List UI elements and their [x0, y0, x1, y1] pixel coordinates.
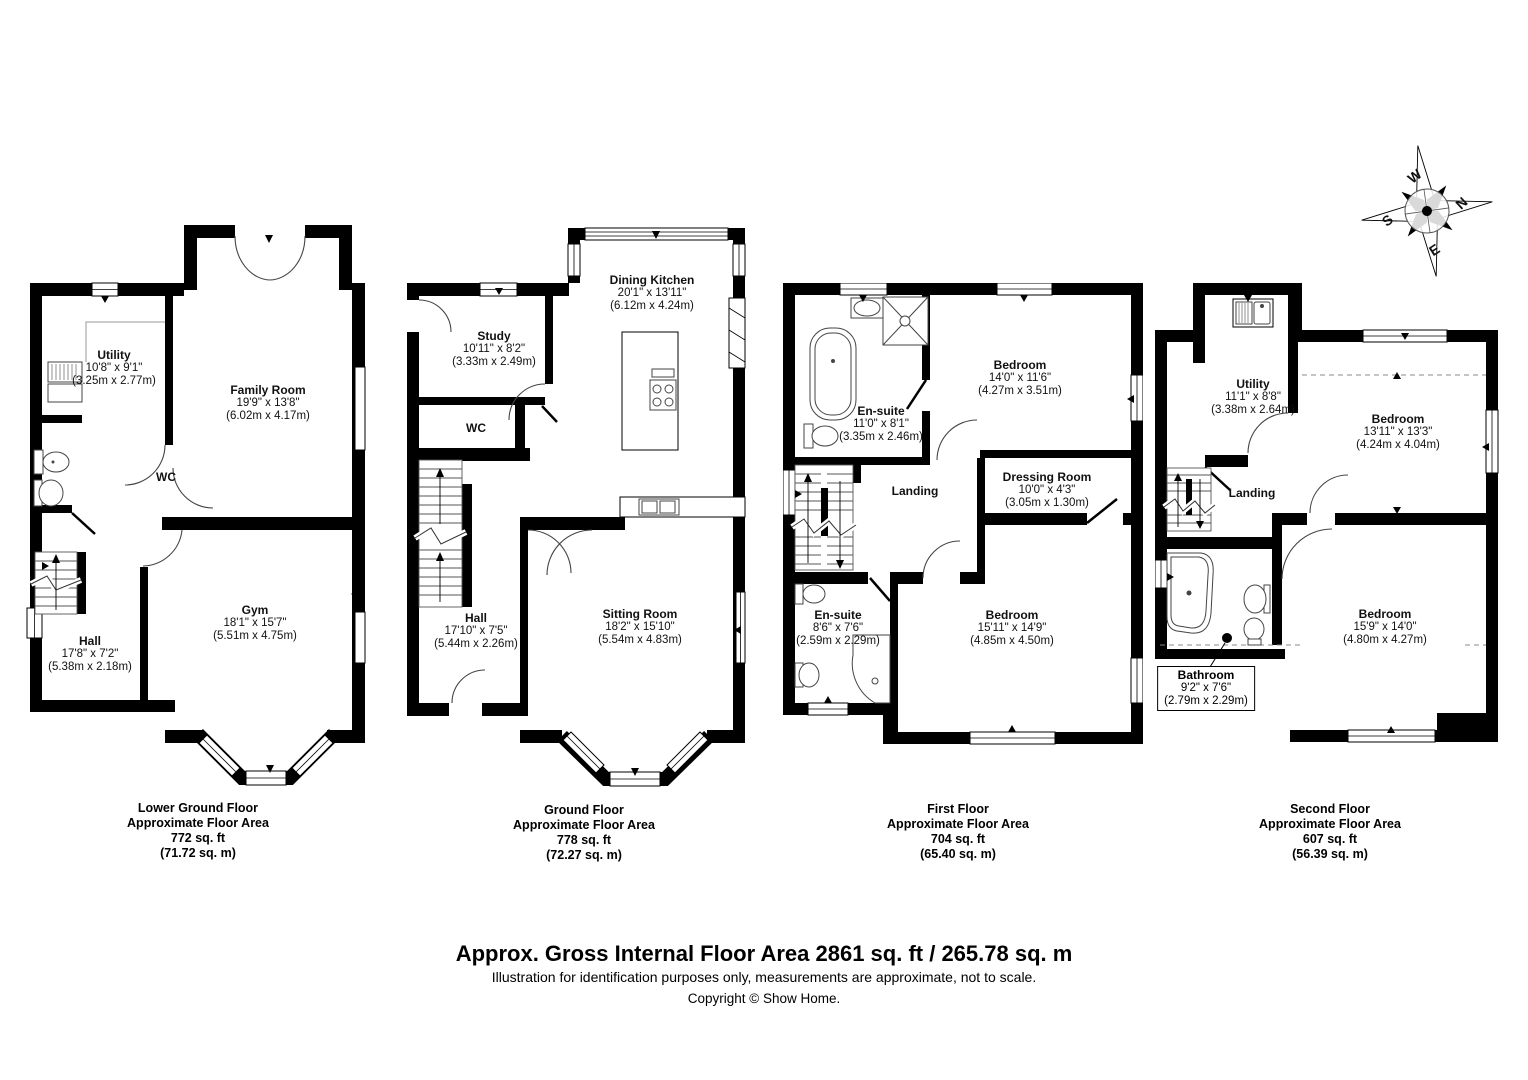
- footer-gross-area: Approx. Gross Internal Floor Area 2861 s…: [0, 941, 1528, 967]
- room-label-ensuite1: En-suite 11'0" x 8'1" (3.35m x 2.46m): [839, 405, 923, 444]
- room-label-dining-kitchen: Dining Kitchen 20'1" x 13'11" (6.12m x 4…: [610, 274, 695, 313]
- compass-rose: W N E S: [1352, 136, 1502, 286]
- room-label-bedroom1: Bedroom 14'0" x 11'6" (4.27m x 3.51m): [978, 359, 1062, 398]
- hob-icon: [650, 380, 676, 410]
- floor-label-second: Second Floor Approximate Floor Area 607 …: [1259, 802, 1401, 862]
- room-label-wc-lgf: WC: [156, 471, 176, 484]
- plan-lower-ground-floor: [22, 222, 397, 807]
- stairs-icon: [1164, 468, 1215, 531]
- room-label-bedroom4: Bedroom 15'9" x 14'0" (4.80m x 4.27m): [1343, 608, 1427, 647]
- stairs-icon: [415, 460, 466, 607]
- floor-label-ground: Ground Floor Approximate Floor Area 778 …: [513, 803, 655, 863]
- dimension-ticks: [42, 235, 358, 773]
- kitchen-counter-icon: [620, 497, 745, 517]
- wc-door-leaf: [72, 513, 95, 534]
- room-label-study: Study 10'11" x 8'2" (3.33m x 2.49m): [452, 330, 536, 369]
- hall-door-leaf: [542, 406, 557, 422]
- room-label-bathroom: Bathroom 9'2" x 7'6" (2.79m x 2.29m): [1157, 666, 1255, 711]
- floor-label-lower-ground: Lower Ground Floor Approximate Floor Are…: [127, 801, 269, 861]
- room-label-bedroom3: Bedroom 13'11" x 13'3" (4.24m x 4.04m): [1356, 413, 1440, 452]
- room-label-landing-sf: Landing: [1229, 487, 1276, 500]
- stairs-icon: [31, 552, 81, 614]
- kitchen-island-icon: [622, 332, 678, 450]
- floorplan-canvas: W N E S Utility 10'8" x 9'1" (3.25m x 2.…: [0, 0, 1528, 1080]
- room-label-family-room: Family Room 19'9" x 13'8" (6.02m x 4.17m…: [226, 384, 310, 423]
- stairs-icon: [792, 465, 856, 570]
- room-label-bedroom2: Bedroom 15'11" x 14'9" (4.85m x 4.50m): [970, 609, 1054, 648]
- room-label-hall-gf: Hall 17'10" x 7'5" (5.44m x 2.26m): [434, 612, 518, 651]
- room-label-utility-sf: Utility 11'1" x 8'8" (3.38m x 2.64m): [1211, 378, 1295, 417]
- toilet-icon: [1244, 618, 1264, 640]
- room-label-utility-lgf: Utility 10'8" x 9'1" (3.25m x 2.77m): [72, 349, 156, 388]
- footer-disclaimer: Illustration for identification purposes…: [0, 969, 1528, 985]
- room-label-landing-ff: Landing: [892, 485, 939, 498]
- room-label-dressing-room: Dressing Room 10'0" x 4'3" (3.05m x 1.30…: [1003, 471, 1092, 510]
- room-label-gym: Gym 18'1" x 15'7" (5.51m x 4.75m): [213, 604, 297, 643]
- door-arcs: [923, 420, 977, 578]
- plan-first-floor: [783, 283, 1143, 753]
- plan-ground-floor: [407, 222, 757, 807]
- toilet-icon: [34, 450, 43, 474]
- room-label-hall-lgf: Hall 17'8" x 7'2" (5.38m x 2.18m): [48, 635, 132, 674]
- room-label-ensuite2: En-suite 8'6" x 7'6" (2.59m x 2.29m): [796, 609, 880, 648]
- footer-copyright: Copyright © Show Home.: [0, 991, 1528, 1006]
- compass-e: E: [1426, 241, 1443, 260]
- floor-label-first: First Floor Approximate Floor Area 704 s…: [887, 802, 1029, 862]
- room-label-sitting-room: Sitting Room 18'2" x 15'10" (5.54m x 4.8…: [598, 608, 682, 647]
- room-label-wc-gf: WC: [466, 422, 486, 435]
